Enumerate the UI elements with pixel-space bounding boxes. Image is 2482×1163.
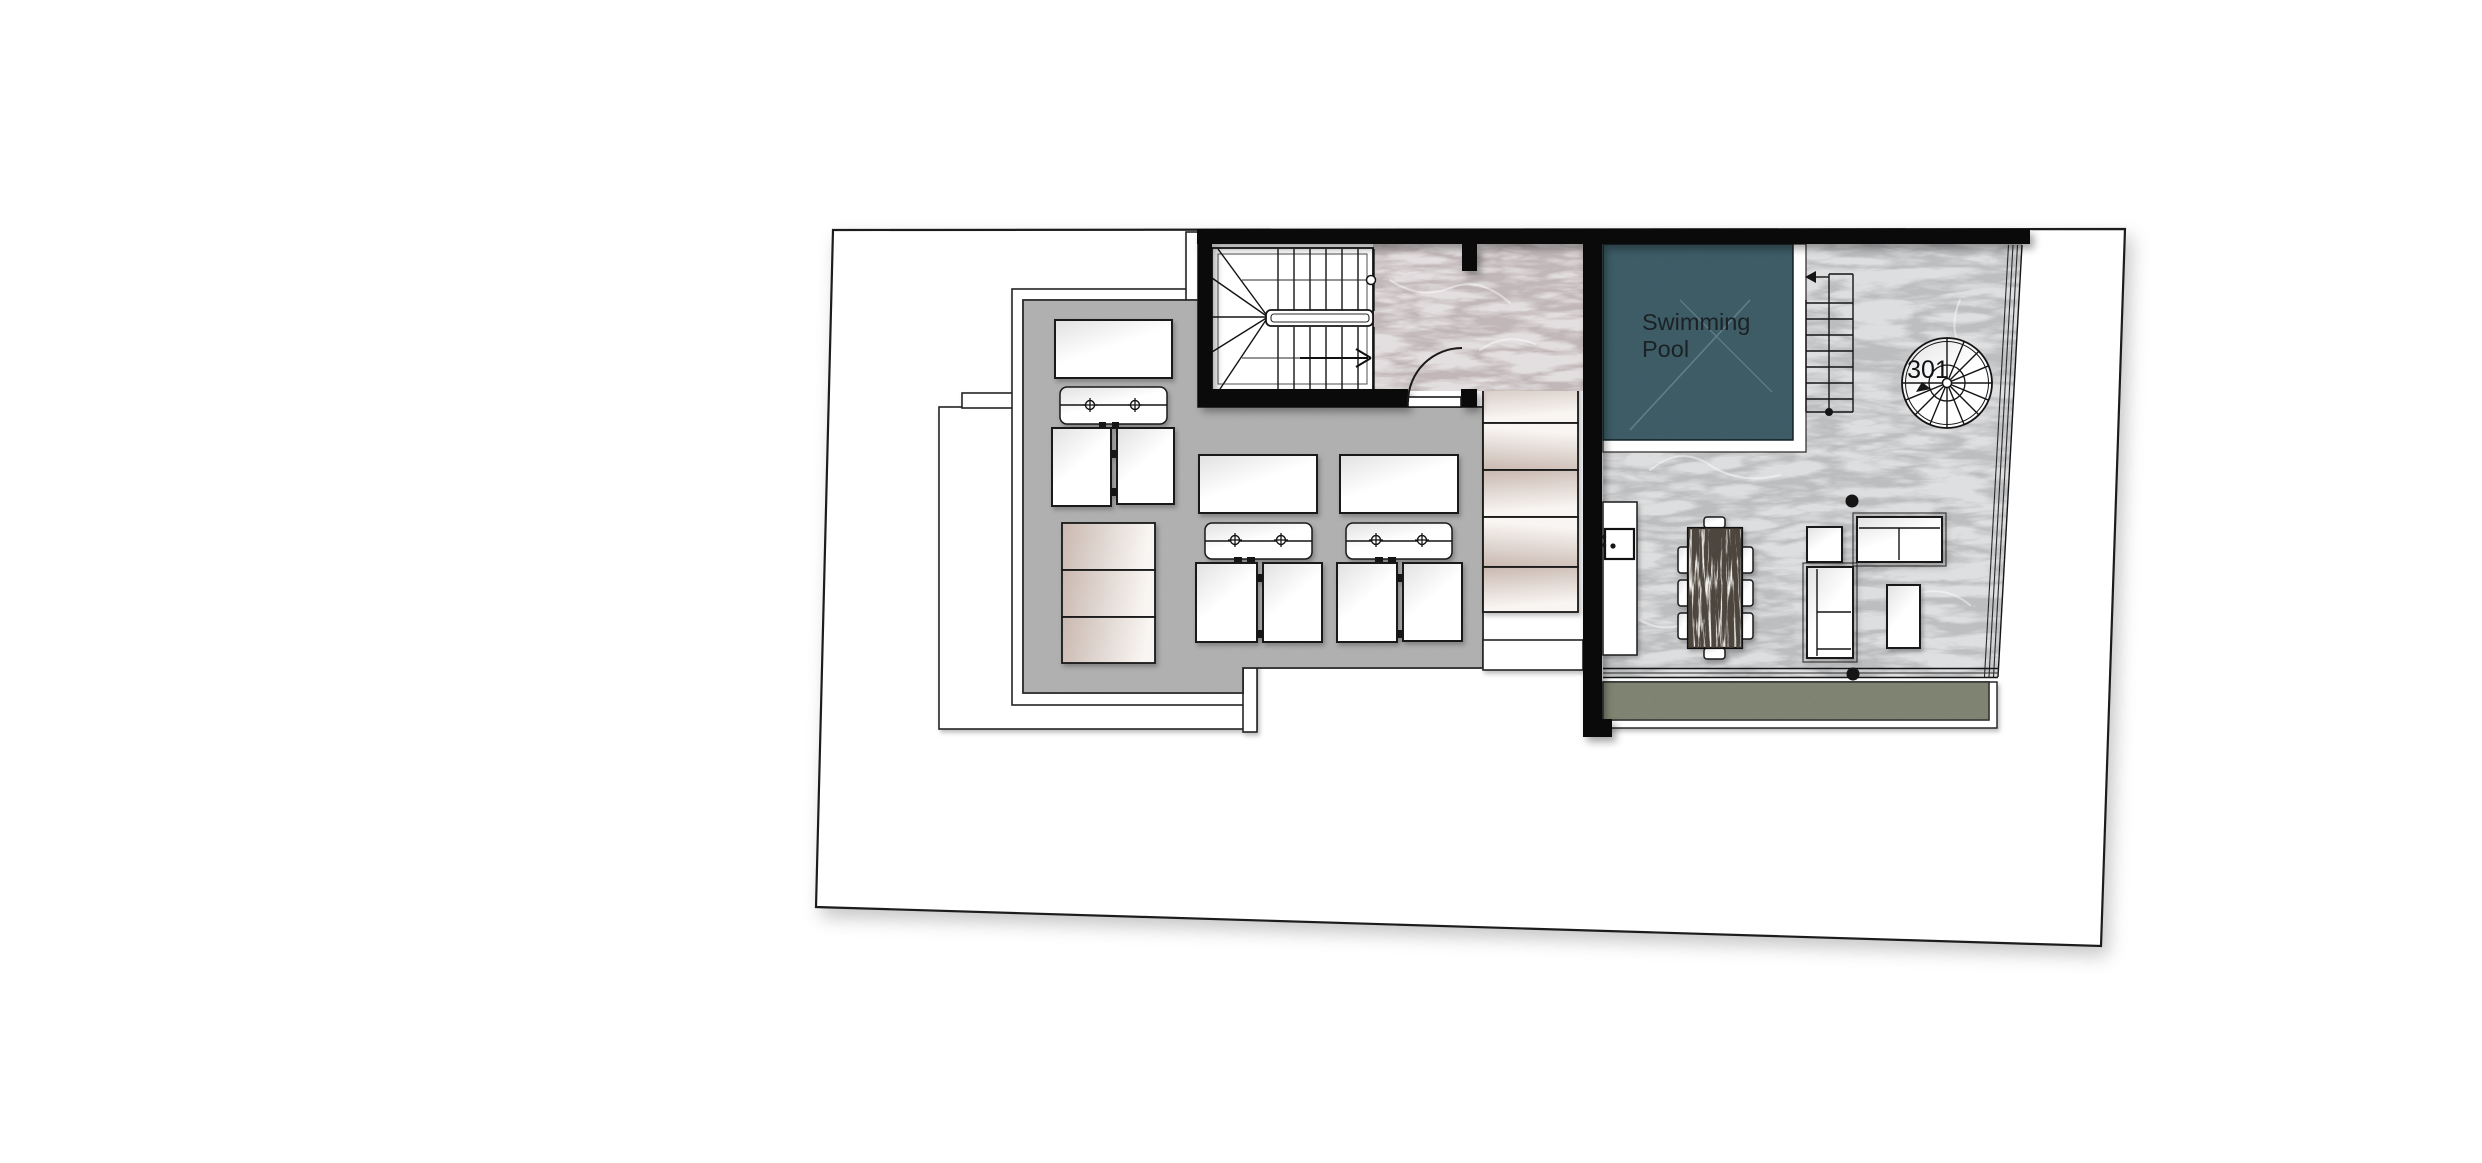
- sun-lounger: [1403, 563, 1462, 641]
- stair-hall: [1373, 244, 1583, 391]
- stair-handrail: [1266, 310, 1373, 326]
- wall-stub-lower: [1461, 389, 1477, 407]
- pool-label-line2: Pool: [1642, 336, 1689, 362]
- coffee-table: [1887, 585, 1920, 648]
- daybed: [1055, 320, 1172, 378]
- column-dot: [1847, 668, 1860, 681]
- unit-number-label: 301: [1907, 356, 1949, 384]
- pool-texture: [1603, 244, 1793, 440]
- column-dot: [1846, 495, 1859, 508]
- dining-set: [1678, 517, 1753, 659]
- walkway-right-tab: [1243, 666, 1257, 732]
- swimming-pool: Swimming Pool: [1603, 244, 1806, 452]
- daybed: [1199, 455, 1317, 513]
- grass-highlight: [1603, 682, 1989, 720]
- pool-label-line1: Swimming: [1642, 309, 1750, 335]
- wall-top: [1197, 229, 2030, 244]
- sun-lounger: [1117, 428, 1174, 504]
- sun-lounger: [1196, 563, 1257, 642]
- service-door: [1605, 529, 1634, 559]
- dining-stool: [1704, 648, 1725, 659]
- walkway-band: [1483, 640, 1583, 670]
- sun-lounger: [1337, 563, 1397, 642]
- planter-boxes: [1062, 523, 1155, 663]
- pool-steps-end-dot: [1825, 408, 1833, 416]
- door-hinge-dot: [1602, 543, 1606, 547]
- door-leaf: [1408, 397, 1461, 407]
- wall-stair-left: [1198, 229, 1212, 391]
- wall-stub-upper: [1462, 229, 1477, 271]
- sun-lounger: [1263, 563, 1322, 642]
- hall-veins: [1373, 244, 1583, 391]
- door-handle-dot: [1610, 543, 1615, 548]
- wall-foot: [1583, 719, 1612, 737]
- main-staircase: [1212, 248, 1376, 390]
- sun-lounger: [1052, 428, 1111, 506]
- door-hinge-dot: [1602, 535, 1606, 539]
- floor-plan-canvas: Swimming Pool: [0, 0, 2482, 1163]
- dining-stool: [1704, 517, 1725, 528]
- armchair: [1807, 527, 1842, 562]
- wall-divider: [1583, 229, 1602, 737]
- outdoor-kitchen: [1602, 502, 1637, 655]
- wall-stair-bottom: [1198, 389, 1408, 407]
- daybed: [1340, 455, 1458, 513]
- stair-start-marker: [1367, 276, 1376, 285]
- spiral-staircase: 301: [1902, 338, 1992, 428]
- kitchen-counter: [1603, 502, 1637, 655]
- grass-planter: [1603, 682, 1997, 728]
- dining-table-woodgrain: [1688, 528, 1742, 648]
